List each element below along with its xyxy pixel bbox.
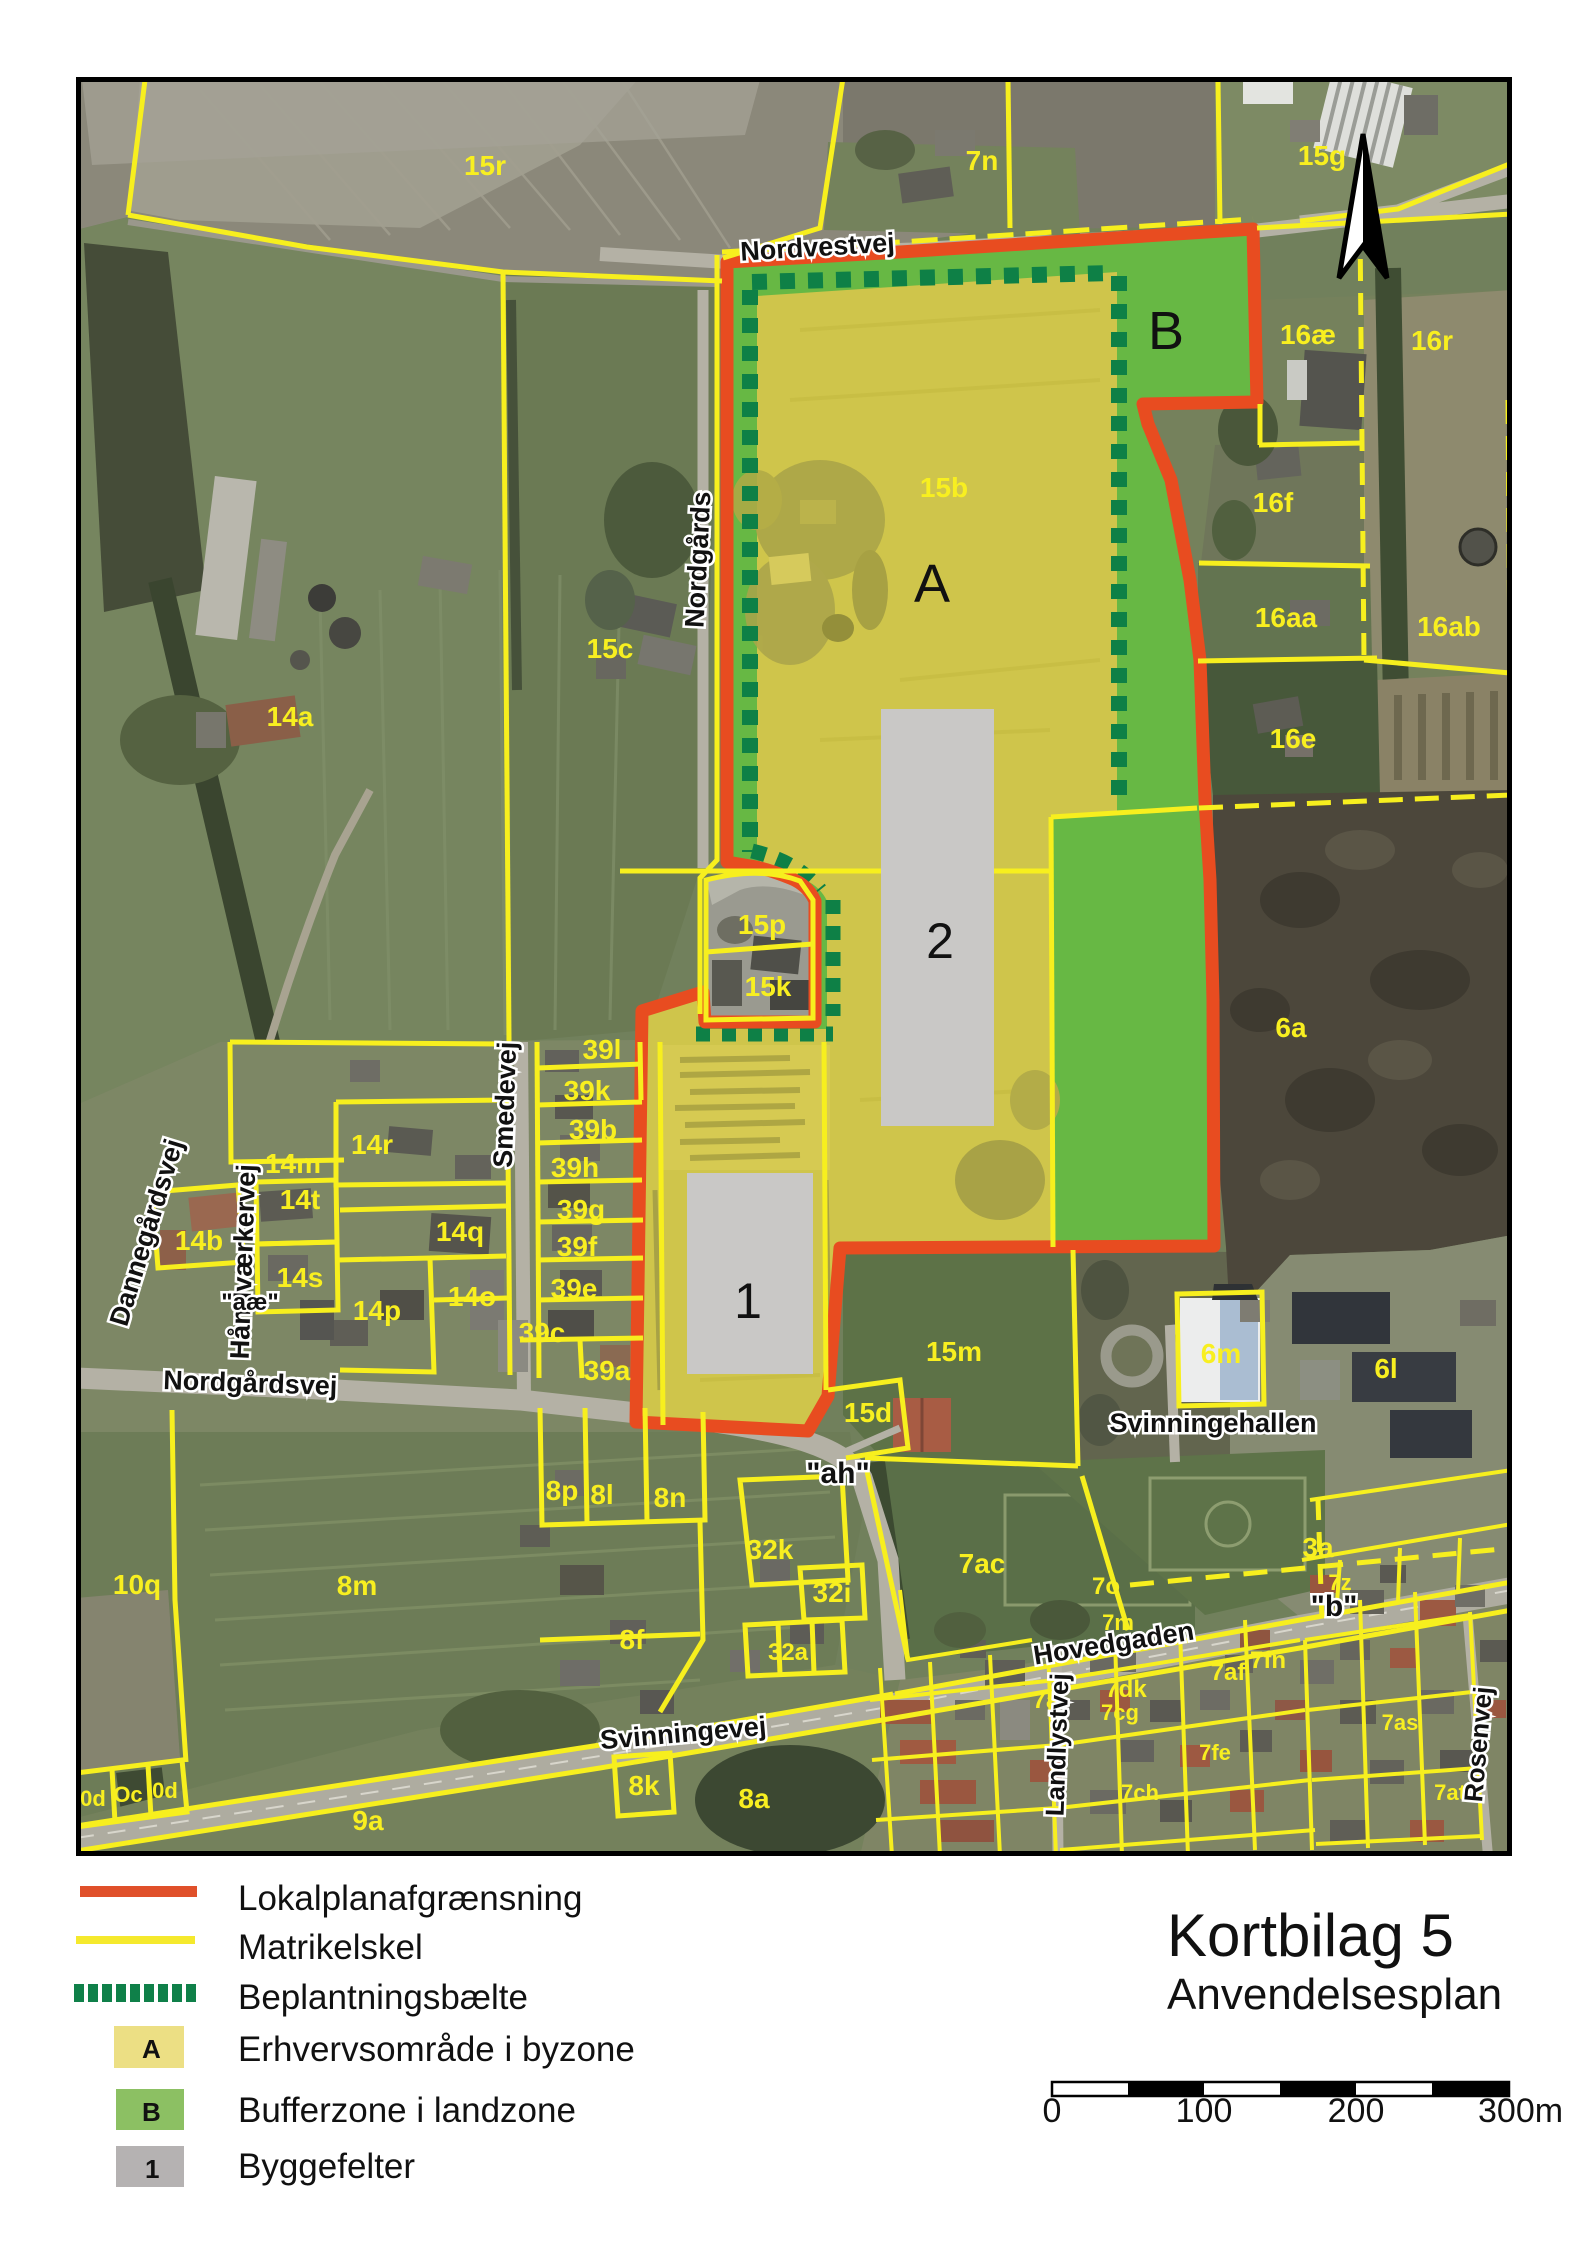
svg-text:16æ: 16æ [1280, 319, 1336, 350]
svg-text:7n: 7n [966, 145, 999, 176]
svg-text:39g: 39g [557, 1194, 605, 1225]
svg-text:"aæ": "aæ" [221, 1289, 278, 1316]
svg-text:15r: 15r [464, 150, 506, 181]
svg-text:39l: 39l [583, 1034, 622, 1065]
svg-text:16ab: 16ab [1417, 611, 1481, 642]
svg-text:16f: 16f [1253, 487, 1294, 518]
svg-text:B: B [1148, 301, 1184, 361]
svg-text:14o: 14o [448, 1281, 496, 1312]
svg-text:8p: 8p [546, 1475, 579, 1506]
svg-text:16r: 16r [1411, 325, 1453, 356]
svg-text:Svinningehallen: Svinningehallen [1109, 1408, 1316, 1438]
svg-text:14s: 14s [277, 1262, 324, 1293]
svg-text:Erhvervsområde i byzone: Erhvervsområde i byzone [238, 2030, 635, 2069]
svg-text:"b": "b" [1311, 1590, 1358, 1623]
svg-text:32a: 32a [768, 1639, 809, 1666]
svg-text:15g: 15g [1298, 140, 1346, 171]
svg-text:7fn: 7fn [1250, 1647, 1286, 1674]
svg-text:8a: 8a [738, 1783, 770, 1814]
svg-text:0: 0 [1043, 2092, 1062, 2130]
svg-text:0d: 0d [80, 1786, 106, 1811]
svg-text:14m: 14m [265, 1148, 321, 1179]
svg-text:15k: 15k [745, 971, 792, 1002]
svg-text:6l: 6l [1374, 1353, 1397, 1384]
svg-text:8n: 8n [654, 1482, 687, 1513]
svg-text:14p: 14p [353, 1295, 401, 1326]
svg-text:Lokalplanafgrænsning: Lokalplanafgrænsning [238, 1879, 582, 1918]
svg-text:14a: 14a [267, 701, 314, 732]
svg-text:16e: 16e [1270, 723, 1317, 754]
svg-text:39a: 39a [584, 1355, 631, 1386]
svg-text:32i: 32i [813, 1577, 852, 1608]
svg-text:Landlystvej: Landlystvej [1040, 1673, 1075, 1817]
svg-text:8l: 8l [590, 1479, 613, 1510]
svg-text:7af: 7af [1211, 1659, 1247, 1686]
svg-text:14t: 14t [280, 1184, 320, 1215]
svg-text:39h: 39h [551, 1152, 599, 1183]
svg-text:Nordgårdsvej: Nordgårdsvej [163, 1365, 338, 1401]
svg-text:9a: 9a [352, 1805, 384, 1836]
svg-text:Beplantningsbælte: Beplantningsbælte [238, 1978, 528, 2017]
svg-text:100: 100 [1176, 2092, 1233, 2130]
svg-text:300m: 300m [1478, 2092, 1563, 2130]
svg-text:7ch: 7ch [1121, 1780, 1159, 1805]
svg-text:15p: 15p [738, 909, 786, 940]
svg-text:39e: 39e [551, 1273, 598, 1304]
svg-text:10q: 10q [113, 1569, 161, 1600]
svg-text:Byggefelter: Byggefelter [238, 2147, 415, 2186]
svg-text:3a: 3a [1302, 1532, 1334, 1563]
svg-text:7o: 7o [1092, 1573, 1120, 1600]
svg-text:7ac: 7ac [959, 1548, 1006, 1579]
svg-text:8f: 8f [620, 1624, 646, 1655]
svg-text:8m: 8m [337, 1570, 377, 1601]
svg-text:16aa: 16aa [1255, 602, 1318, 633]
svg-text:7dk: 7dk [1105, 1676, 1147, 1703]
svg-text:2: 2 [926, 913, 954, 969]
svg-text:7as: 7as [1382, 1710, 1419, 1735]
svg-text:Bufferzone i landzone: Bufferzone i landzone [238, 2091, 576, 2130]
svg-text:39k: 39k [564, 1075, 611, 1106]
svg-text:Oc: Oc [113, 1782, 142, 1807]
svg-text:0d: 0d [152, 1778, 178, 1803]
svg-text:15c: 15c [587, 633, 634, 664]
svg-text:1: 1 [145, 2154, 159, 2184]
svg-text:15d: 15d [844, 1397, 892, 1428]
svg-text:Anvendelsesplan: Anvendelsesplan [1167, 1970, 1502, 2019]
svg-text:8k: 8k [628, 1770, 660, 1801]
svg-text:6m: 6m [1201, 1338, 1241, 1369]
svg-text:Smedevej: Smedevej [488, 1041, 522, 1168]
svg-text:15b: 15b [920, 472, 968, 503]
svg-text:14r: 14r [351, 1129, 393, 1160]
svg-text:39f: 39f [557, 1231, 598, 1262]
svg-text:14b: 14b [175, 1225, 223, 1256]
svg-text:39c: 39c [519, 1317, 566, 1348]
svg-text:200: 200 [1328, 2092, 1385, 2130]
svg-text:14q: 14q [436, 1216, 484, 1247]
svg-text:B: B [142, 2097, 161, 2127]
svg-text:"ah": "ah" [806, 1457, 869, 1490]
svg-text:32k: 32k [747, 1534, 794, 1565]
svg-text:15m: 15m [926, 1336, 982, 1367]
svg-text:7fe: 7fe [1199, 1740, 1231, 1765]
svg-text:Matrikelskel: Matrikelskel [238, 1928, 423, 1967]
svg-text:39b: 39b [569, 1114, 617, 1145]
svg-text:Kortbilag 5: Kortbilag 5 [1167, 1902, 1454, 1969]
svg-text:A: A [142, 2034, 161, 2064]
svg-text:A: A [914, 554, 950, 614]
svg-text:7cg: 7cg [1101, 1700, 1139, 1725]
svg-text:6a: 6a [1275, 1012, 1307, 1043]
svg-text:1: 1 [734, 1273, 762, 1329]
